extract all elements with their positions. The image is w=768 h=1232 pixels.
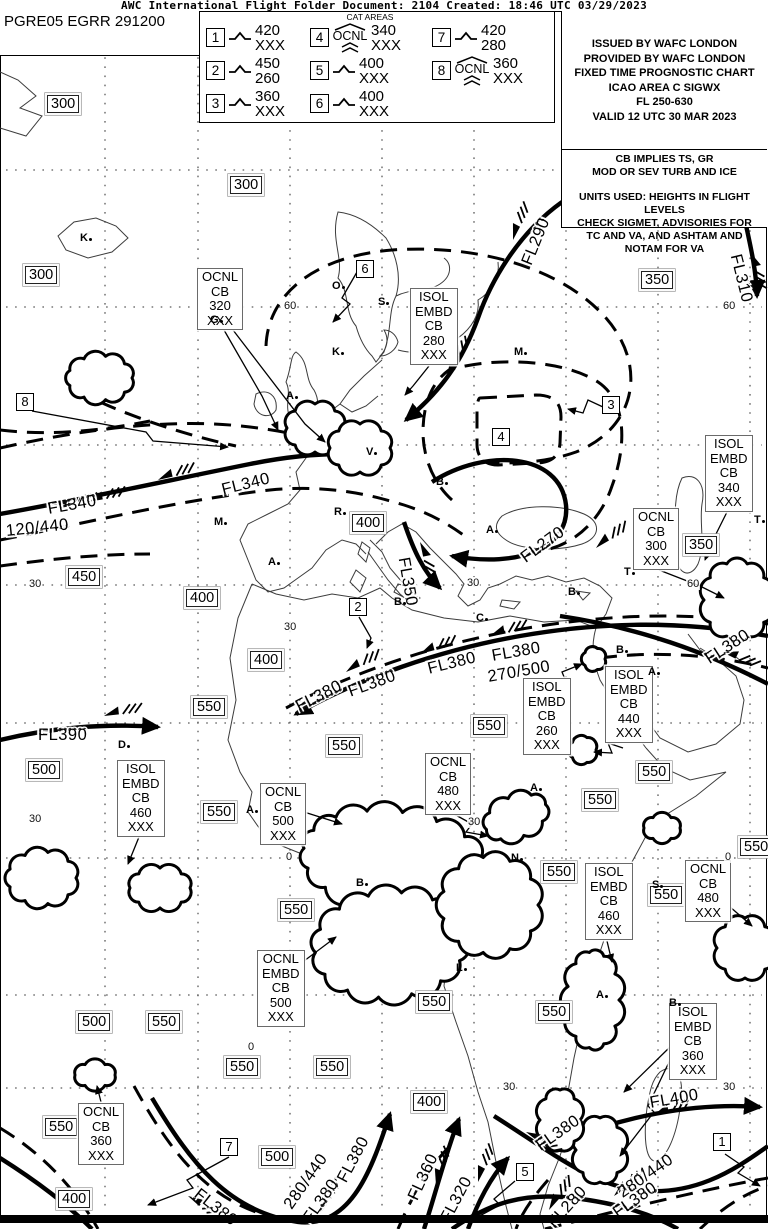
cat-area-number: 3	[206, 94, 225, 113]
lat-lon-label: 30	[722, 1081, 736, 1093]
units-note: UNITS USED: HEIGHTS IN FLIGHT LEVELS CHE…	[562, 179, 767, 256]
tropopause-height-box: 300	[230, 176, 262, 194]
cat-area-number: 7	[432, 28, 451, 47]
cat-area-levels: 420 XXX	[255, 23, 285, 53]
lat-lon-label: 0	[247, 1041, 255, 1053]
lat-lon-label: 30	[283, 621, 297, 633]
city-marker: T	[754, 514, 765, 526]
cb-label-box: OCNL CB 480 XXX	[425, 753, 471, 815]
chart-bottom-border	[0, 1215, 768, 1223]
lat-lon-label: 0	[285, 851, 293, 863]
tropopause-height-box: 550	[45, 1118, 77, 1136]
turbulence-icon	[332, 95, 356, 113]
chart-info-box: ISSUED BY WAFC LONDON PROVIDED BY WAFC L…	[561, 11, 767, 228]
cb-label-box: OCNL EMBD CB 500 XXX	[257, 950, 305, 1027]
cat-area-levels: 420 280	[481, 23, 506, 53]
city-marker: D	[118, 739, 130, 751]
city-marker: S	[378, 296, 389, 308]
lat-lon-label: 30	[502, 1081, 516, 1093]
city-marker: B	[394, 596, 406, 608]
tropopause-height-box: 550	[280, 901, 312, 919]
cb-label-box: ISOL EMBD CB 440 XXX	[605, 666, 653, 743]
cat-area-levels: 400 XXX	[359, 56, 389, 86]
city-marker: A	[530, 782, 542, 794]
city-marker: S	[652, 879, 663, 891]
cat-base-level: XXX	[359, 71, 389, 86]
cat-area-legend-item: 3 360 XXX	[206, 87, 310, 120]
cat-area-marker: 5	[516, 1163, 534, 1181]
tropopause-height-box: 550	[584, 791, 616, 809]
tropopause-height-box: 300	[25, 266, 57, 284]
city-marker: O	[332, 280, 345, 292]
cat-area-legend-item: 8 OCNL 360 XXX	[432, 54, 552, 87]
city-marker: V	[366, 446, 377, 458]
cat-area-legend-item: 5 400 XXX	[310, 54, 432, 87]
tropopause-height-box: 550	[148, 1013, 180, 1031]
tropopause-height-box: 550	[226, 1058, 258, 1076]
ocnl-cat-icon: OCNL	[332, 23, 368, 53]
tropopause-height-box: 550	[543, 863, 575, 881]
tropopause-height-box: 450	[68, 568, 100, 586]
ocnl-label: OCNL	[333, 31, 368, 42]
cat-base-level: XXX	[371, 38, 401, 53]
city-marker: K	[80, 232, 92, 244]
legend-grid: 1 420 XXX 2	[206, 21, 552, 120]
cat-area-marker: 8	[16, 393, 34, 411]
cat-area-legend-item: 1 420 XXX	[206, 21, 310, 54]
cb-label-box: ISOL EMBD CB 360 XXX	[669, 1003, 717, 1080]
cat-area-number: 5	[310, 61, 329, 80]
cat-base-level: 280	[481, 38, 506, 53]
city-marker: A	[268, 556, 280, 568]
cat-top-level: 360	[493, 56, 523, 71]
city-marker: A	[648, 666, 660, 678]
cat-area-legend-item: 4 OCNL 340 XXX	[310, 21, 432, 54]
turbulence-icon	[228, 62, 252, 80]
cb-label-box: ISOL EMBD CB 260 XXX	[523, 678, 571, 755]
tropopause-height-box: 400	[250, 651, 282, 669]
city-marker: T	[624, 566, 635, 578]
lat-lon-label: 30	[466, 577, 480, 589]
tropopause-height-box: 500	[78, 1013, 110, 1031]
lat-lon-label: 30	[28, 813, 42, 825]
cat-area-marker: 3	[602, 396, 620, 414]
tropopause-height-box: 550	[328, 737, 360, 755]
ocnl-label: OCNL	[455, 64, 490, 75]
city-marker: M	[214, 516, 227, 528]
cat-area-number: 2	[206, 61, 225, 80]
cat-area-levels: 450 260	[255, 56, 280, 86]
cb-label-box: ISOL EMBD CB 460 XXX	[117, 760, 165, 837]
cat-area-legend-item: 6 400 XXX	[310, 87, 432, 120]
tropopause-height-box: 500	[261, 1148, 293, 1166]
cat-area-marker: 7	[220, 1138, 238, 1156]
cb-label-box: ISOL EMBD CB 460 XXX	[585, 863, 633, 940]
city-marker: N	[511, 852, 523, 864]
turbulence-icon	[332, 62, 356, 80]
city-marker: A	[596, 989, 608, 1001]
tropopause-height-box: 550	[203, 803, 235, 821]
cat-area-levels: 360 XXX	[493, 56, 523, 86]
cb-label-box: OCNL CB 360 XXX	[78, 1103, 124, 1165]
cat-area-number: 4	[310, 28, 329, 47]
cat-area-marker: 2	[349, 598, 367, 616]
cat-top-level: 360	[255, 89, 285, 104]
label-leader-arrows	[32, 272, 760, 1220]
tropopause-height-box: 300	[47, 95, 79, 113]
city-marker: A	[486, 524, 498, 536]
cat-area-levels: 400 XXX	[359, 89, 389, 119]
city-marker: K	[332, 346, 344, 358]
cat-area-levels: 340 XXX	[371, 23, 401, 53]
city-marker: B	[356, 877, 368, 889]
tropopause-height-box: 550	[740, 838, 768, 856]
city-marker: A	[246, 804, 258, 816]
tropopause-height-box: 400	[352, 514, 384, 532]
tropopause-height-box: 400	[413, 1093, 445, 1111]
issuance-info: ISSUED BY WAFC LONDON PROVIDED BY WAFC L…	[562, 11, 767, 124]
city-marker: R	[334, 506, 346, 518]
cat-base-level: XXX	[255, 38, 285, 53]
turbulence-icon	[228, 29, 252, 47]
tropopause-height-box: 550	[473, 717, 505, 735]
tropopause-height-box: 550	[316, 1058, 348, 1076]
lat-lon-label: 0	[724, 851, 732, 863]
lat-lon-label: 30	[467, 816, 481, 828]
tropopause-height-box: 350	[641, 271, 673, 289]
ocnl-cat-icon: OCNL	[454, 56, 490, 86]
cat-area-number: 8	[432, 61, 451, 80]
tropopause-height-box: 550	[538, 1003, 570, 1021]
cat-area-marker: 6	[356, 260, 374, 278]
jet-flight-level-label: FL390	[38, 726, 87, 745]
city-marker: A	[286, 390, 298, 402]
cat-area-legend-item: 2 450 260	[206, 54, 310, 87]
cb-label-box: ISOL EMBD CB 280 XXX	[410, 288, 458, 365]
cat-area-legend-item: 7 420 280	[432, 21, 552, 54]
cat-area-levels: 360 XXX	[255, 89, 285, 119]
tropopause-height-box: 400	[186, 589, 218, 607]
cb-label-box: OCNL CB 500 XXX	[260, 783, 306, 845]
cat-area-marker: 1	[713, 1133, 731, 1151]
cb-note: CB IMPLIES TS, GR MOD OR SEV TURB AND IC…	[562, 150, 767, 179]
lat-lon-label: 60	[686, 578, 700, 590]
cat-area-number: 1	[206, 28, 225, 47]
cat-areas-legend: CAT AREAS 1 420 XXX 2	[199, 11, 555, 123]
cat-top-level: 420	[255, 23, 285, 38]
cat-top-level: 340	[371, 23, 401, 38]
cat-area-number: 6	[310, 94, 329, 113]
tropopause-height-box: 500	[28, 761, 60, 779]
city-marker: B	[669, 997, 681, 1009]
lat-lon-label: 30	[28, 578, 42, 590]
cb-label-box: OCNL CB 300 XXX	[633, 508, 679, 570]
tropopause-height-box: 550	[193, 698, 225, 716]
city-marker: M	[514, 346, 527, 358]
cat-base-level: XXX	[359, 104, 389, 119]
cat-top-level: 420	[481, 23, 506, 38]
cat-base-level: XXX	[493, 71, 523, 86]
turbulence-icon	[228, 95, 252, 113]
cat-area-marker: 4	[492, 428, 510, 446]
cat-top-level: 400	[359, 89, 389, 104]
city-marker: G	[210, 314, 223, 326]
cat-top-level: 450	[255, 56, 280, 71]
turbulence-icon	[454, 29, 478, 47]
lat-lon-label: 60	[283, 300, 297, 312]
cat-base-level: XXX	[255, 104, 285, 119]
tropopause-height-box: 400	[58, 1190, 90, 1208]
lat-lon-label: 60	[722, 300, 736, 312]
tropopause-height-box: 550	[638, 763, 670, 781]
city-marker: B	[436, 476, 448, 488]
tropopause-height-box: 350	[685, 536, 717, 554]
city-marker: B	[616, 644, 628, 656]
city-marker: L	[456, 962, 467, 974]
cat-top-level: 400	[359, 56, 389, 71]
cat-base-level: 260	[255, 71, 280, 86]
cb-label-box: OCNL CB 480 XXX	[685, 860, 731, 922]
tropopause-height-box: 550	[418, 993, 450, 1011]
city-marker: B	[568, 586, 580, 598]
cb-label-box: ISOL EMBD CB 340 XXX	[705, 435, 753, 512]
city-marker: C	[476, 612, 488, 624]
